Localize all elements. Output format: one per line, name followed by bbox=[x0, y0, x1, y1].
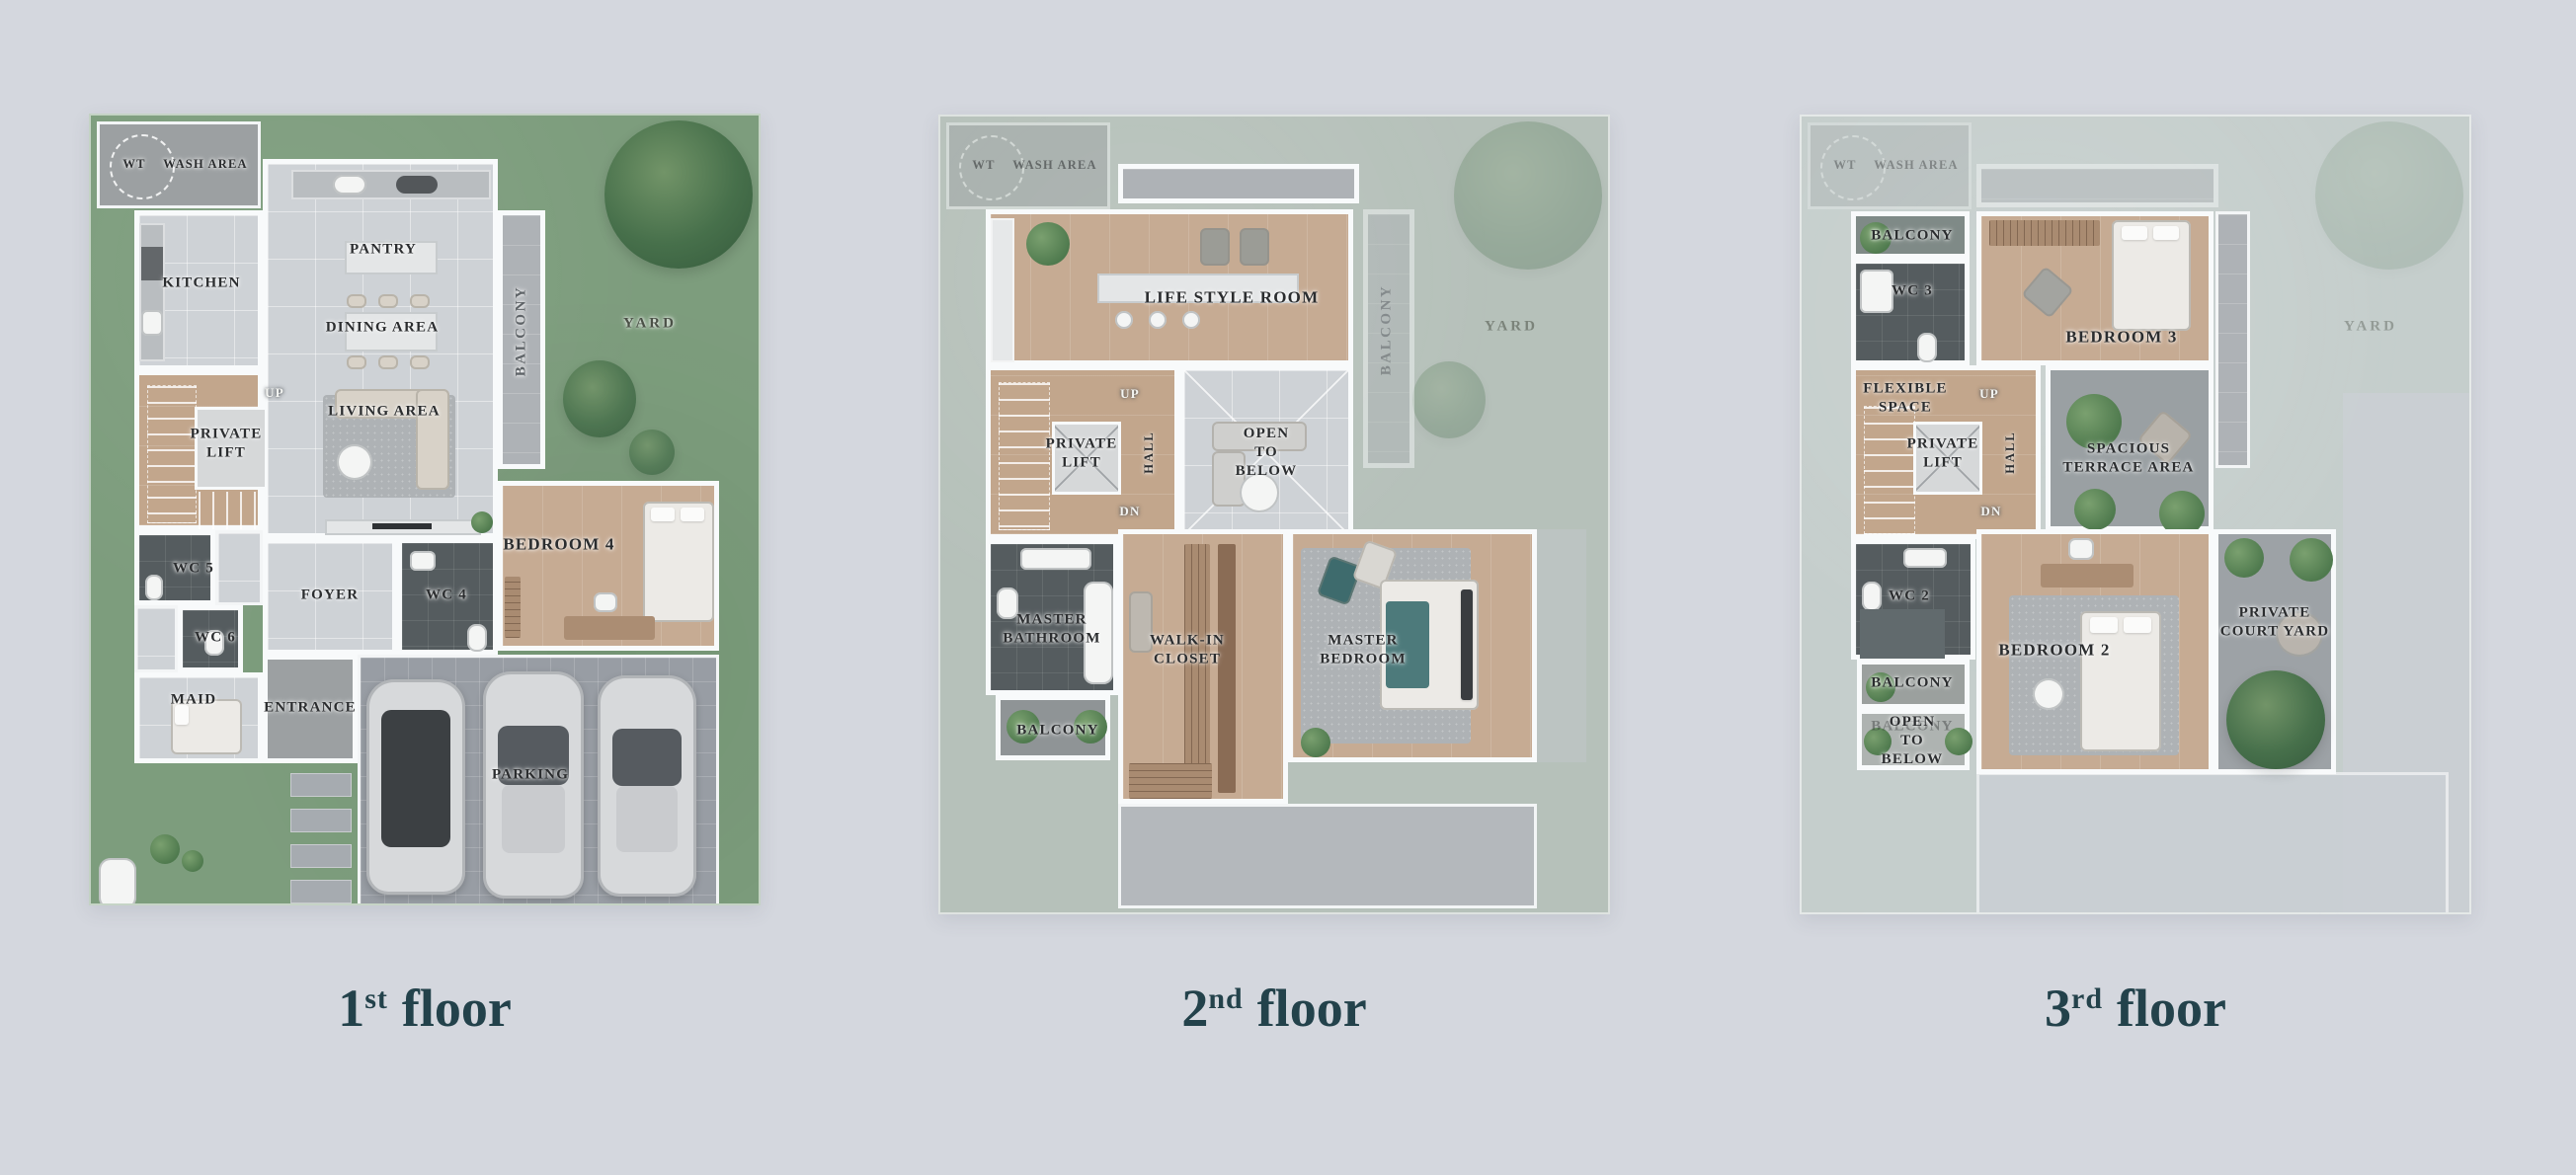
pillow bbox=[2124, 617, 2151, 633]
floor-plan-2: WT WASH AREA LIFE STYLE ROOM BALCONY YAR… bbox=[938, 115, 1610, 914]
lower-terrace bbox=[1118, 804, 1537, 908]
dining-chair bbox=[378, 355, 398, 369]
toilet bbox=[467, 624, 487, 652]
car-glass bbox=[612, 729, 682, 786]
flexible-space bbox=[1851, 365, 2041, 539]
lounge-chair bbox=[1240, 228, 1269, 266]
lounge-chair bbox=[1200, 228, 1230, 266]
stairs bbox=[147, 385, 197, 523]
stairs bbox=[199, 492, 264, 529]
caption-number: 1 bbox=[338, 979, 364, 1038]
plant bbox=[2290, 538, 2333, 582]
dining-chair bbox=[347, 355, 366, 369]
wash-area-ghost bbox=[946, 122, 1110, 209]
stairs bbox=[999, 382, 1050, 530]
front-balcony bbox=[1118, 164, 1359, 203]
wc3 bbox=[1851, 259, 1970, 365]
tree bbox=[629, 430, 675, 475]
caption-number: 2 bbox=[1181, 979, 1208, 1038]
balcony-2 bbox=[996, 695, 1110, 760]
floor-plans-canvas: WT WASH AREA KITCHEN bbox=[0, 0, 2576, 1175]
front-ledge bbox=[1976, 164, 2218, 207]
toilet bbox=[1917, 333, 1937, 362]
plant bbox=[1945, 728, 1972, 755]
caption-ordinal: st bbox=[364, 982, 388, 1015]
lifestyle-room bbox=[986, 209, 1353, 365]
stair-hall bbox=[134, 370, 263, 530]
shrub bbox=[150, 834, 180, 864]
private-lift bbox=[1913, 422, 1982, 495]
bed-throw bbox=[1386, 601, 1429, 688]
pillow bbox=[651, 508, 675, 521]
open-to-below bbox=[1857, 709, 1970, 770]
caption-word: floor bbox=[1257, 979, 1367, 1038]
bed bbox=[2112, 220, 2191, 331]
plant bbox=[1860, 222, 1892, 254]
wc4 bbox=[397, 538, 498, 655]
wardrobe bbox=[1218, 544, 1236, 793]
lounge-chair bbox=[2137, 410, 2193, 465]
wash-area-ghost bbox=[1808, 122, 1972, 209]
water-tank-circle bbox=[959, 135, 1024, 200]
entrance bbox=[263, 655, 358, 763]
balcony bbox=[498, 210, 545, 469]
floor-plan-3: WT WASH AREA BALCONY WC 3 BEDROOM 3 YARD bbox=[1800, 115, 2471, 914]
desk bbox=[564, 616, 655, 640]
car-glass bbox=[381, 710, 450, 848]
toilet bbox=[204, 630, 224, 656]
bedroom4 bbox=[498, 481, 719, 651]
counter-hob bbox=[396, 176, 438, 194]
sofa-chaise bbox=[416, 389, 449, 490]
pantry-counter bbox=[291, 170, 491, 199]
car-roof bbox=[616, 786, 678, 852]
private-lift bbox=[1052, 422, 1121, 495]
dining-chair bbox=[378, 294, 398, 308]
foyer bbox=[263, 538, 397, 655]
floor-plan-1: WT WASH AREA KITCHEN bbox=[89, 114, 761, 905]
bedroom2 bbox=[1976, 529, 2214, 774]
chair bbox=[594, 592, 617, 612]
plant bbox=[2224, 538, 2264, 578]
plant bbox=[471, 511, 493, 533]
plant bbox=[1026, 222, 1070, 266]
wc5 bbox=[134, 530, 215, 605]
toilet bbox=[145, 575, 163, 600]
kitchen-counter bbox=[139, 223, 165, 361]
wardrobe bbox=[1129, 763, 1212, 799]
toilet bbox=[997, 587, 1018, 619]
tv bbox=[372, 523, 432, 529]
bed bbox=[171, 699, 242, 754]
private-court-yard bbox=[2214, 529, 2336, 774]
pillow bbox=[2153, 226, 2179, 240]
caption-number: 3 bbox=[2045, 979, 2071, 1038]
garden-fixture bbox=[99, 858, 136, 905]
walk-in-closet bbox=[1118, 529, 1288, 804]
tree bbox=[563, 360, 636, 437]
tree-ghost bbox=[1454, 121, 1602, 270]
caption-2nd-floor: 2ndfloor bbox=[938, 970, 1610, 1038]
stove bbox=[141, 247, 163, 280]
caption-1st-floor: 1stfloor bbox=[89, 970, 761, 1038]
car-roof bbox=[502, 785, 564, 853]
hall bbox=[986, 365, 1179, 539]
toilet bbox=[1862, 582, 1882, 611]
wardrobe bbox=[505, 577, 521, 638]
sink bbox=[1903, 548, 1947, 568]
spacious-terrace bbox=[2046, 365, 2214, 531]
tree-ghost bbox=[2315, 121, 2463, 270]
plant bbox=[1074, 710, 1107, 744]
pillow bbox=[681, 508, 704, 521]
wardrobe bbox=[1184, 544, 1210, 793]
private-lift bbox=[195, 407, 268, 490]
pillow bbox=[2122, 226, 2147, 240]
yard-label: YARD bbox=[2344, 318, 2397, 337]
closet bbox=[215, 530, 263, 605]
side-terrace-ghost bbox=[1537, 529, 1586, 762]
dining-table bbox=[345, 312, 438, 352]
plant bbox=[1864, 728, 1892, 755]
wc2 bbox=[1851, 539, 1975, 660]
walk-slab bbox=[290, 773, 352, 797]
water-tank-circle bbox=[1820, 135, 1886, 200]
pillow bbox=[2090, 617, 2118, 633]
coffee-table bbox=[337, 444, 372, 480]
beanbag bbox=[2276, 611, 2323, 657]
hall-sliver bbox=[134, 605, 178, 672]
entry-walkway bbox=[284, 763, 358, 905]
twin-sinks bbox=[1020, 548, 1091, 570]
master-bedroom bbox=[1288, 529, 1537, 762]
kitchenette bbox=[991, 218, 1014, 362]
sink bbox=[141, 310, 163, 336]
car-glass bbox=[498, 726, 568, 785]
wc6 bbox=[178, 605, 243, 672]
walk-slab bbox=[290, 809, 352, 832]
dining-chair bbox=[347, 294, 366, 308]
pantry-island bbox=[345, 241, 438, 274]
pillow bbox=[175, 705, 189, 725]
wash-area bbox=[97, 121, 261, 208]
water-tank-circle bbox=[110, 134, 175, 199]
balcony-mid bbox=[1857, 660, 1970, 709]
wardrobe bbox=[1989, 220, 2100, 246]
sofa bbox=[1212, 422, 1307, 451]
balcony bbox=[1363, 209, 1414, 468]
car bbox=[598, 675, 696, 897]
plant bbox=[1301, 728, 1330, 757]
coffee-table bbox=[1240, 473, 1279, 512]
master-bathroom bbox=[986, 539, 1118, 695]
side-table bbox=[2033, 678, 2064, 710]
dining-chair bbox=[410, 355, 430, 369]
island-counter bbox=[1097, 274, 1299, 303]
caption-ordinal: rd bbox=[2071, 982, 2103, 1015]
side-ledge bbox=[2215, 211, 2250, 468]
bush bbox=[2226, 670, 2325, 769]
caption-3rd-floor: 3rdfloor bbox=[1800, 970, 2471, 1038]
headboard bbox=[1461, 589, 1473, 700]
caption-word: floor bbox=[2117, 979, 2226, 1038]
dining-chair bbox=[410, 294, 430, 308]
yard-label: YARD bbox=[1485, 318, 1538, 337]
plant bbox=[1006, 710, 1040, 744]
walk-slab bbox=[290, 844, 352, 868]
counter-sink bbox=[333, 175, 366, 195]
bed bbox=[1380, 580, 1479, 710]
plant bbox=[2066, 394, 2122, 449]
plant bbox=[2074, 489, 2116, 530]
car bbox=[366, 679, 465, 895]
plant bbox=[1866, 672, 1895, 702]
tree-ghost bbox=[1412, 361, 1486, 438]
walk-slab bbox=[290, 880, 352, 903]
open-to-below bbox=[1179, 365, 1353, 539]
bench bbox=[1129, 591, 1153, 653]
stairs bbox=[1864, 406, 1915, 534]
caption-ordinal: nd bbox=[1208, 982, 1243, 1015]
sink bbox=[410, 551, 436, 571]
caption-word: floor bbox=[402, 979, 512, 1038]
shower-tray bbox=[1860, 270, 1893, 313]
stool bbox=[1182, 311, 1200, 329]
great-room bbox=[263, 159, 498, 538]
bed bbox=[643, 502, 714, 622]
stool bbox=[1115, 311, 1133, 329]
bathtub bbox=[1084, 582, 1113, 684]
balcony-top bbox=[1851, 211, 1970, 259]
bedroom3 bbox=[1976, 211, 2214, 365]
tree bbox=[604, 120, 753, 269]
shrub bbox=[182, 850, 203, 872]
stool bbox=[1149, 311, 1167, 329]
car bbox=[483, 671, 584, 899]
lower-terrace-ghost bbox=[1976, 772, 2449, 914]
bed bbox=[2080, 611, 2161, 751]
chair bbox=[2068, 538, 2094, 560]
kitchen bbox=[134, 210, 263, 370]
yard-label: YARD bbox=[623, 315, 677, 334]
maid-room bbox=[134, 672, 263, 763]
shower bbox=[1860, 609, 1945, 659]
desk bbox=[2041, 564, 2133, 587]
armchair bbox=[2021, 266, 2074, 319]
parking bbox=[358, 655, 719, 905]
